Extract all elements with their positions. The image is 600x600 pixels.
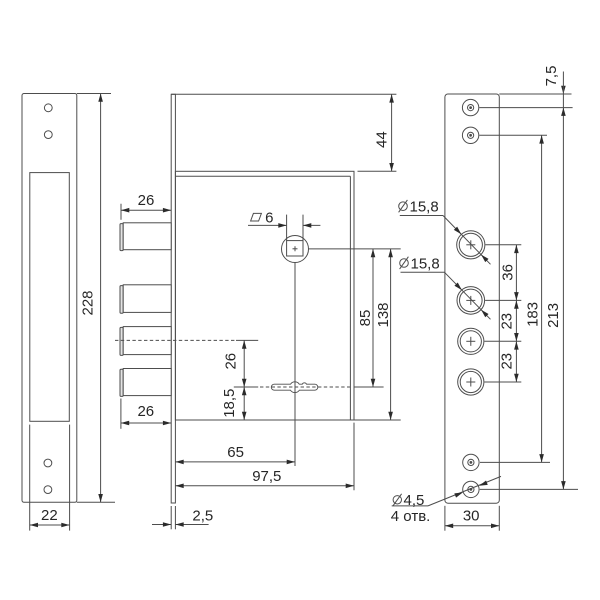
svg-text:2,5: 2,5 xyxy=(192,508,213,525)
svg-text:30: 30 xyxy=(463,508,480,525)
svg-text:36: 36 xyxy=(499,264,516,281)
svg-text:65: 65 xyxy=(227,444,244,461)
svg-text:85: 85 xyxy=(357,310,374,327)
svg-text:15,8: 15,8 xyxy=(411,255,440,272)
svg-text:183: 183 xyxy=(525,302,542,327)
svg-text:138: 138 xyxy=(375,302,392,327)
svg-text:97,5: 97,5 xyxy=(252,468,281,485)
svg-text:18,5: 18,5 xyxy=(221,389,238,418)
svg-text:22: 22 xyxy=(41,507,58,524)
svg-text:228: 228 xyxy=(80,290,97,315)
svg-text:26: 26 xyxy=(222,353,239,370)
svg-text:23: 23 xyxy=(498,313,515,330)
svg-text:26: 26 xyxy=(137,403,154,420)
svg-text:26: 26 xyxy=(138,192,155,209)
svg-text:6: 6 xyxy=(265,210,273,227)
svg-text:23: 23 xyxy=(498,353,515,370)
svg-text:44: 44 xyxy=(373,131,390,148)
svg-text:15,8: 15,8 xyxy=(410,199,439,216)
svg-text:4,5: 4,5 xyxy=(404,492,425,509)
svg-text:4 отв.: 4 отв. xyxy=(391,508,431,525)
svg-text:7,5: 7,5 xyxy=(543,66,560,87)
svg-text:213: 213 xyxy=(545,303,562,328)
